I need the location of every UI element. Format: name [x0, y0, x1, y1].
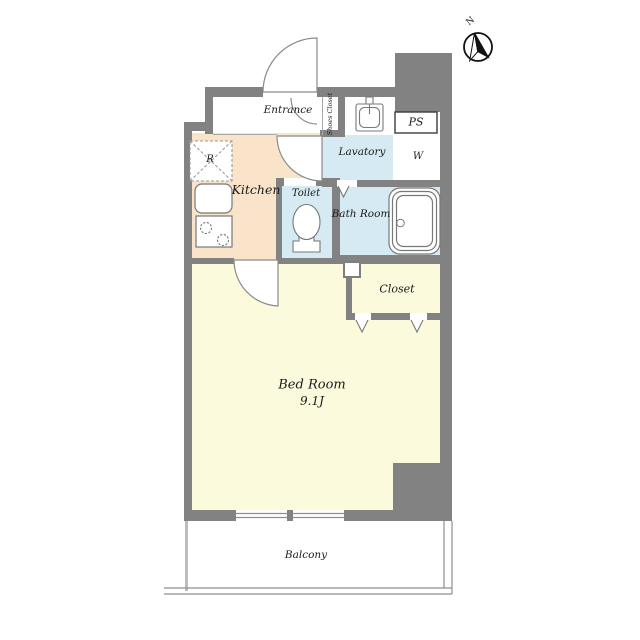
floor-plan-drawing: [0, 0, 640, 640]
bedroom-size-label: 9.1J: [300, 395, 324, 407]
window-gap: [293, 510, 344, 521]
wall: [427, 313, 452, 320]
entrance-label: Entrance: [264, 105, 313, 116]
lavatory-label: Lavatory: [339, 147, 386, 158]
bath-door-gap: [337, 180, 357, 187]
washer-label: W: [413, 152, 423, 162]
closet-pillar: [344, 262, 360, 277]
washbasin-icon: [356, 97, 383, 131]
entrance-door-swing: [263, 38, 317, 92]
toilet-label: Toilet: [292, 189, 320, 199]
wall: [346, 313, 355, 320]
shoes-closet-label: Shoes Closet: [327, 93, 334, 136]
refrigerator-label: R: [206, 155, 214, 165]
kitchen-sink-icon: [195, 184, 232, 213]
lavatory-floor: [322, 135, 393, 181]
wall: [287, 510, 293, 521]
wall: [393, 463, 452, 521]
wall: [184, 258, 234, 264]
toilet-icon: [293, 205, 320, 253]
closet-door-gap: [410, 313, 427, 320]
wall: [440, 53, 452, 521]
closet-label: Closet: [379, 284, 414, 295]
wall: [332, 178, 340, 264]
wall: [344, 510, 393, 521]
wall: [184, 122, 192, 521]
toilet-bowl: [293, 205, 320, 240]
wall: [184, 510, 236, 521]
wall: [371, 313, 410, 320]
kitchen-label: Kitchen: [232, 184, 281, 197]
bedroom-label: Bed Room: [278, 379, 345, 392]
balcony-label: Balcony: [285, 550, 327, 561]
floor-plan: N Entrance Shoes Closet PS Lavatory R W …: [0, 0, 640, 640]
closet-door-gap: [355, 313, 371, 320]
window-gap: [236, 510, 287, 521]
wall: [205, 87, 263, 97]
bathtub-icon: [389, 188, 440, 254]
wall: [346, 277, 352, 313]
bath-room-label: Bath Room: [332, 209, 391, 220]
ps-label: PS: [409, 117, 424, 128]
wall: [276, 258, 334, 264]
partition-lines: [213, 97, 323, 135]
wall: [356, 180, 440, 187]
compass: [464, 31, 492, 61]
